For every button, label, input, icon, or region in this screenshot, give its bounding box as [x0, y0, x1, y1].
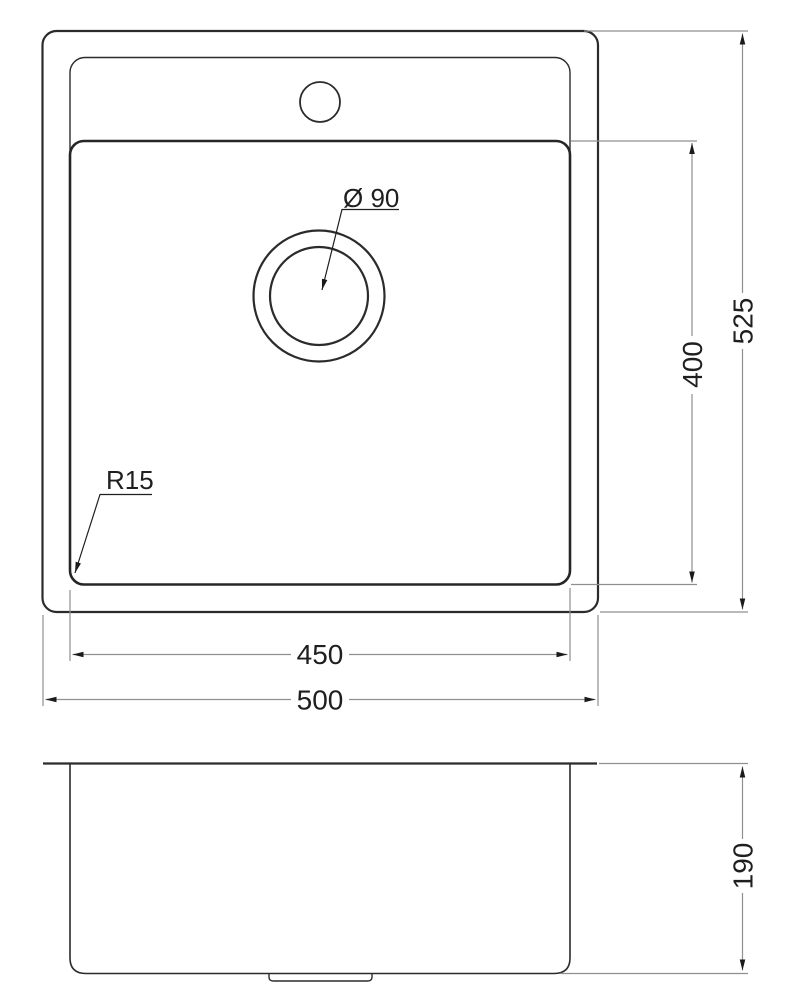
dim-label-bowl-width: 450 [297, 639, 344, 670]
drain-hole-circle [270, 247, 368, 345]
sink-bowl-edge [70, 141, 570, 585]
dimension-bowl-width: 450 [73, 639, 568, 670]
dimension-overall-width: 500 [46, 685, 596, 716]
corner-radius-label: R15 [106, 465, 154, 495]
drain-diameter-label: Ø 90 [343, 183, 399, 213]
dimension-overall-depth: 525 [728, 34, 759, 610]
corner-radius-leader [75, 495, 152, 574]
side-view: 190 [43, 764, 759, 982]
drain-recess-circle [254, 231, 385, 362]
side-drain-boss [269, 974, 372, 982]
dimension-side-height: 190 [728, 767, 759, 971]
top-view: Ø 90 R15 525 400 [43, 31, 759, 716]
sink-rim-inner-edge [70, 58, 570, 585]
dimension-bowl-depth: 400 [677, 143, 708, 583]
technical-drawing-canvas: Ø 90 R15 525 400 [0, 0, 788, 1000]
faucet-hole [300, 82, 340, 122]
dim-label-overall-depth: 525 [728, 298, 759, 345]
dim-label-overall-width: 500 [297, 685, 344, 716]
dim-label-bowl-depth: 400 [677, 341, 708, 388]
sink-outer-edge [43, 31, 599, 612]
sink-dimension-drawing: Ø 90 R15 525 400 [0, 0, 788, 1000]
dim-label-side-height: 190 [728, 843, 759, 890]
side-body-outline [70, 764, 570, 974]
